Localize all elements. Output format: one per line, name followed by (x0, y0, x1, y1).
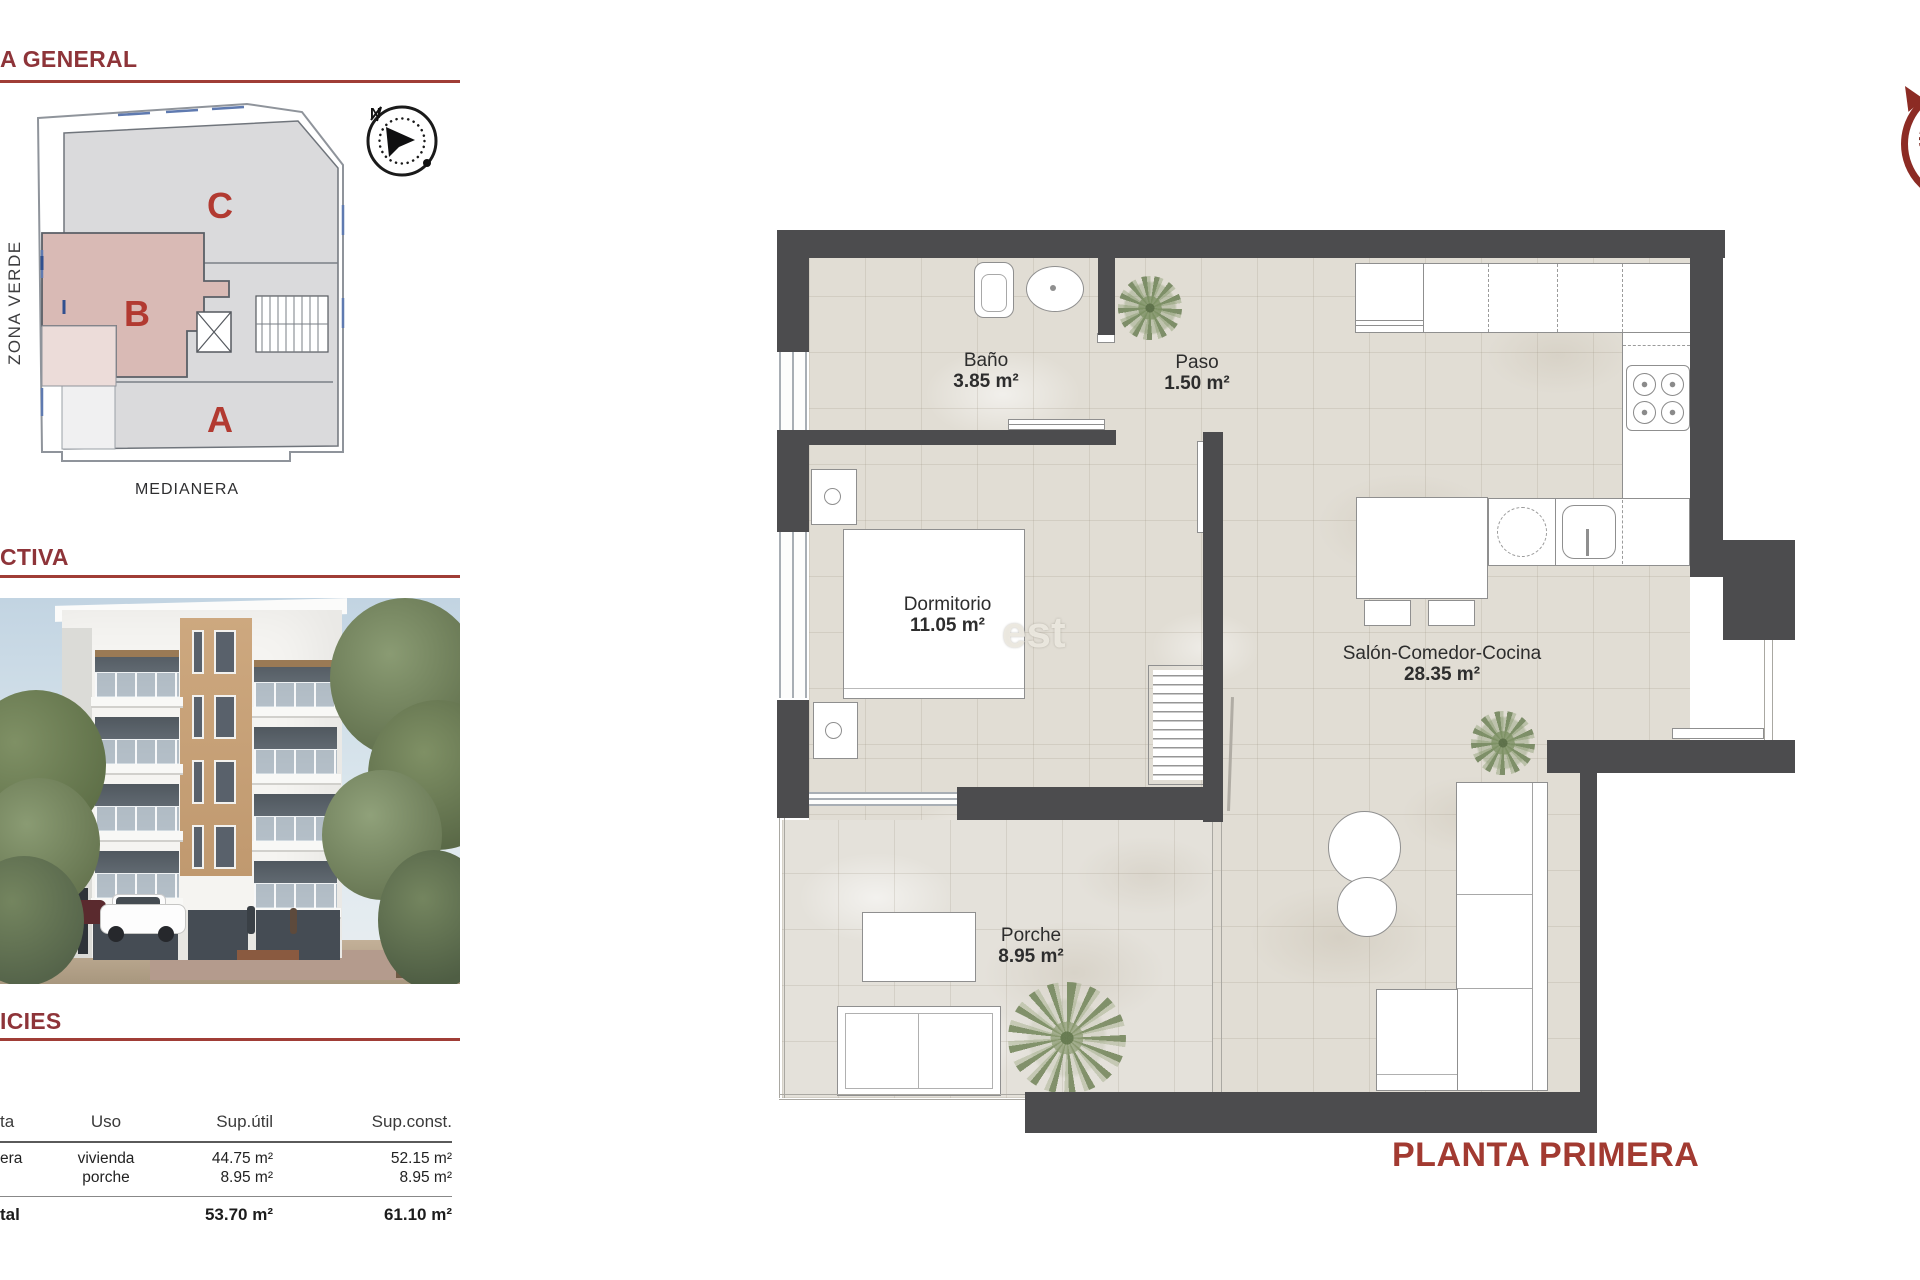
wall (777, 434, 809, 532)
cabinet-divider (1622, 500, 1623, 564)
room-name: Baño (964, 350, 1008, 371)
section-rule (0, 80, 460, 83)
plan-title: PLANTA PRIMERA (1392, 1136, 1699, 1175)
col-uso: Uso (22, 1112, 190, 1132)
wall (777, 430, 1116, 445)
room-label-paso: Paso 1.50 m² (1107, 352, 1287, 395)
room-label-salon: Salón-Comedor-Cocina 28.35 m² (1317, 643, 1567, 686)
col-sup-const: Sup.const. (273, 1112, 452, 1132)
render-railing (95, 806, 179, 833)
cell-total-sup-util: 53.70 m² (190, 1205, 273, 1225)
cell-planta (0, 1169, 22, 1187)
coffee-table (1337, 877, 1397, 937)
palm-plant (1008, 982, 1126, 1094)
kitchen-sink (1562, 505, 1616, 559)
wall (1580, 773, 1597, 1093)
room-name: Porche (1001, 925, 1061, 946)
cell-sup-util: 44.75 m² (190, 1150, 273, 1168)
medianera-label: MEDIANERA (135, 481, 239, 498)
section-title-perspectiva: CTIVA (0, 544, 69, 571)
zona-verde-label: ZONA VERDE (5, 240, 24, 365)
room-area: 1.50 m² (1164, 373, 1229, 395)
render-window (192, 760, 204, 804)
table-header-row: ta Uso Sup.útil Sup.const. (0, 1112, 452, 1132)
section-title-planta-general: A GENERAL (0, 46, 137, 73)
fridge-line (1356, 320, 1423, 321)
chair (1364, 600, 1411, 626)
wall (1098, 258, 1115, 335)
lamp-icon (824, 488, 841, 505)
bed-line (844, 688, 1024, 689)
room-area: 3.85 m² (953, 371, 1018, 393)
cell-sup-const: 52.15 m² (273, 1150, 452, 1168)
burner-icon (1661, 401, 1684, 424)
lamp-icon (825, 722, 842, 739)
render-railing (254, 682, 337, 709)
render-window (214, 760, 236, 804)
render-slab (252, 707, 341, 718)
render-person (290, 908, 297, 934)
render-window (214, 630, 236, 674)
section-rule (0, 575, 460, 578)
sofa-cushion-line (1457, 988, 1532, 989)
cabinet-divider (1488, 264, 1489, 332)
window (809, 792, 957, 806)
cell-total-label: tal (0, 1205, 22, 1225)
sofa-chaise (1376, 989, 1458, 1091)
section-title-superficies: ICIES (0, 1008, 62, 1035)
cell-sup-const: 8.95 m² (273, 1169, 452, 1187)
wall (1547, 740, 1795, 773)
cell-sup-util: 8.95 m² (190, 1169, 273, 1187)
room-area: 11.05 m² (910, 615, 985, 637)
porch-bench-seat (845, 1013, 993, 1089)
block-b-label: B (124, 293, 150, 334)
fridge (1355, 263, 1424, 333)
table-rule (0, 1196, 452, 1197)
render-slab (252, 774, 341, 785)
render-window (214, 825, 236, 869)
dining-table (1356, 497, 1488, 599)
sofa-back-line (1532, 783, 1533, 1090)
block-a-label: A (207, 399, 233, 440)
washer-drum (1497, 507, 1547, 557)
render-window (192, 695, 204, 739)
wall (1690, 258, 1723, 548)
wall (777, 700, 809, 818)
window (779, 532, 807, 698)
cooktop (1626, 365, 1690, 431)
render-railing (254, 749, 337, 776)
render-wood-ceiling (254, 660, 337, 667)
chaise-line (1377, 1074, 1457, 1075)
coffee-table (1328, 811, 1401, 884)
floor-plan-sheet: A GENERAL C B A ZONA VERDE MEDIANERA N C… (0, 0, 1920, 1280)
room-label-porche: Porche 8.95 m² (941, 925, 1121, 968)
room-name: Salón-Comedor-Cocina (1343, 643, 1542, 664)
cell-uso: vivienda (22, 1150, 190, 1168)
table-rule (0, 1141, 452, 1143)
render-window (214, 695, 236, 739)
room-name: Dormitorio (904, 594, 992, 615)
cell-total-uso (22, 1205, 190, 1225)
render-wheel (108, 926, 124, 942)
sofa (1456, 782, 1548, 1091)
window-sill (1672, 728, 1764, 739)
col-planta: ta (0, 1112, 22, 1132)
porch-glazing (1212, 820, 1222, 1092)
fridge-line (1356, 325, 1423, 326)
col-sup-util: Sup.útil (190, 1112, 273, 1132)
burner-icon (1633, 373, 1656, 396)
room-area: 28.35 m² (1404, 664, 1480, 686)
cabinet-divider (1557, 264, 1558, 332)
wall (1203, 432, 1223, 822)
cell-total-sup-const: 61.10 m² (273, 1205, 452, 1225)
chair (1428, 600, 1475, 626)
burner-icon (1633, 401, 1656, 424)
render-railing (95, 672, 179, 699)
sink-tap (1586, 529, 1589, 556)
section-rule (0, 1038, 460, 1041)
wall (1025, 1092, 1597, 1133)
porch-edge (779, 818, 785, 1098)
cabinet-divider (1623, 345, 1690, 346)
watermark: est (1002, 608, 1066, 658)
render-railing (95, 739, 179, 766)
plant (1471, 711, 1535, 775)
wardrobe (1148, 665, 1210, 785)
porch-edge (779, 1094, 1027, 1100)
wall (957, 787, 1223, 820)
render-window (192, 630, 204, 674)
room-area: 8.95 m² (998, 946, 1063, 968)
compass-n-label: N (370, 105, 381, 122)
table-row: era vivienda 44.75 m² 52.15 m² (0, 1150, 452, 1168)
table-total-row: tal 53.70 m² 61.10 m² (0, 1205, 452, 1225)
cell-planta: era (0, 1150, 22, 1168)
block-c-label: C (207, 185, 233, 226)
render-slab (91, 831, 183, 842)
site-plan: C B A ZONA VERDE MEDIANERA N (0, 86, 470, 516)
burner-icon (1661, 373, 1684, 396)
toilet-seat (981, 274, 1007, 312)
north-compass-icon: N (368, 105, 436, 175)
washbasin-tap (1050, 285, 1056, 291)
render-wheel (158, 926, 174, 942)
unit-b-annex (42, 326, 116, 386)
porch-bench-divider (918, 1013, 919, 1089)
wall (1723, 577, 1795, 640)
wall (1690, 540, 1795, 577)
wall (777, 258, 809, 352)
table-row: porche 8.95 m² 8.95 m² (0, 1169, 452, 1187)
render-railing (254, 883, 337, 910)
plant (1118, 276, 1182, 340)
cell-uso: porche (22, 1169, 190, 1187)
window (779, 352, 807, 434)
render-person (247, 906, 255, 934)
render-slab (91, 697, 183, 708)
wall (777, 230, 1725, 258)
render-window (192, 825, 204, 869)
window (1764, 640, 1773, 742)
building-render (0, 598, 460, 984)
render-bench (237, 950, 299, 960)
sofa-cushion-line (1457, 894, 1532, 895)
render-wood-ceiling (95, 650, 179, 657)
room-label-bano: Baño 3.85 m² (896, 350, 1076, 393)
bath-shelf-line (1008, 424, 1105, 425)
cabinet-divider (1622, 264, 1623, 332)
room-name: Paso (1175, 352, 1218, 373)
plot-notch (62, 386, 115, 449)
